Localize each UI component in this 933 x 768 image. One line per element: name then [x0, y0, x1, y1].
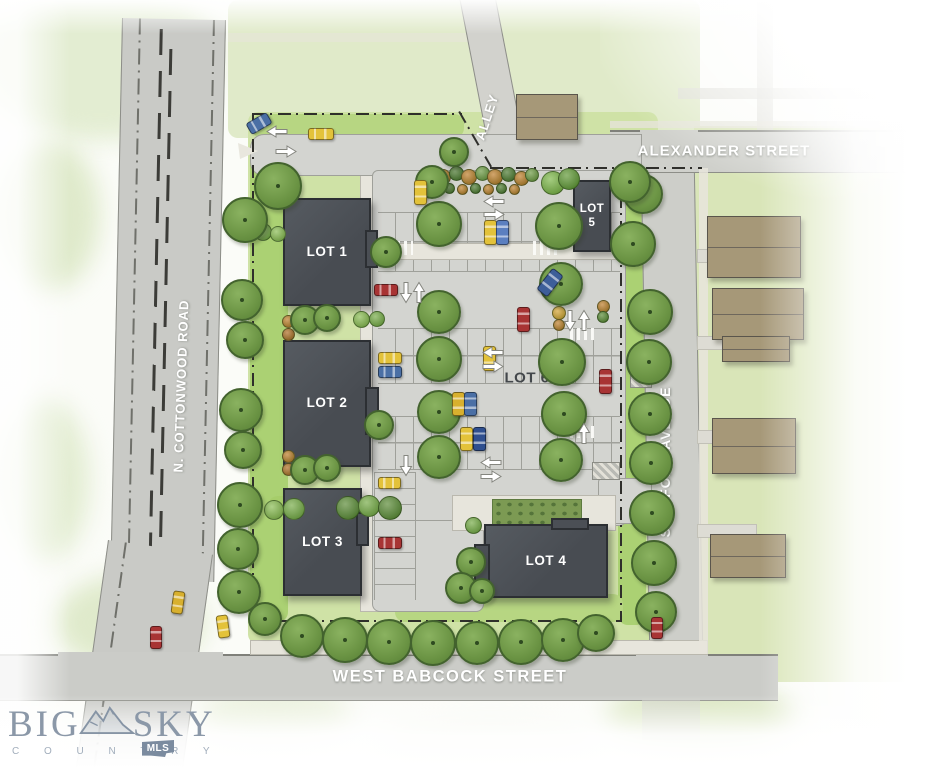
car [460, 427, 473, 451]
drive-aisle-arrow-right [275, 145, 297, 158]
shrub [496, 183, 507, 194]
car [215, 614, 230, 638]
site-plan-canvas: LOT 1 LOT 2 LOT 3 LOT 4 LOT 5 LOT 6 ALLE… [0, 0, 933, 768]
drive-aisle-arrow-up [578, 422, 591, 444]
house [707, 216, 801, 278]
shrub [558, 168, 580, 190]
shrub [336, 496, 360, 520]
car [599, 369, 612, 394]
house [712, 418, 796, 474]
car [651, 617, 663, 639]
shrub [457, 184, 468, 195]
drive-aisle-arrow-right [480, 470, 502, 483]
tree [217, 482, 263, 528]
drive-aisle-arrow-down [400, 454, 413, 476]
car [484, 220, 497, 245]
bigsky-mls-logo: BIG SKY C O U N T R Y MLS [8, 704, 221, 757]
tree [498, 619, 544, 665]
tree [417, 435, 461, 479]
tree [577, 614, 615, 652]
tree [609, 161, 651, 203]
shrub [358, 495, 380, 517]
shrub [378, 496, 402, 520]
tree [629, 441, 673, 485]
shrub [465, 517, 482, 534]
tree [629, 490, 675, 536]
drive-aisle-arrow-down [564, 309, 577, 331]
shrub [470, 183, 481, 194]
logo-word-sky: SKY [133, 706, 216, 743]
tree [366, 619, 412, 665]
tree [322, 617, 368, 663]
shrub [283, 498, 305, 520]
car [374, 284, 398, 296]
tree [313, 304, 341, 332]
car [378, 366, 402, 378]
tree [217, 528, 259, 570]
house [710, 534, 786, 578]
scenery-layer [0, 0, 933, 768]
tree [610, 221, 656, 267]
house [722, 336, 790, 362]
tree [219, 388, 263, 432]
drive-aisle-arrow-left [482, 346, 504, 359]
mountain-icon [79, 704, 135, 743]
drive-aisle-arrow-left [483, 195, 505, 208]
car [517, 307, 530, 332]
mls-badge-text: MLS [147, 743, 170, 754]
tree [538, 338, 586, 386]
tree [226, 321, 264, 359]
car [170, 590, 185, 614]
tree [224, 431, 262, 469]
car [308, 128, 334, 140]
drive-aisle-arrow-down [400, 281, 413, 303]
tree [439, 137, 469, 167]
tree [535, 202, 583, 250]
drive-aisle-arrow-up [413, 281, 426, 303]
drive-aisle-arrow-right [482, 360, 504, 373]
tree [280, 614, 324, 658]
tree [631, 540, 677, 586]
logo-subtitle: C O U N T R Y [12, 746, 221, 757]
tree [539, 438, 583, 482]
drive-aisle-arrow-left [480, 456, 502, 469]
shrub [270, 226, 286, 242]
shrub [509, 184, 520, 195]
tree [222, 197, 268, 243]
house [516, 94, 578, 140]
tree [364, 410, 394, 440]
tree [410, 620, 456, 666]
car [378, 537, 402, 549]
shrub [369, 311, 385, 327]
drive-aisle-arrow-right [483, 208, 505, 221]
shrub [525, 168, 539, 182]
car [378, 352, 402, 364]
car [378, 477, 401, 489]
car [452, 392, 465, 416]
shrub [597, 311, 609, 323]
tree [626, 339, 672, 385]
tree [627, 289, 673, 335]
logo-word-big: BIG [8, 706, 81, 743]
tree [416, 201, 462, 247]
house [712, 288, 804, 340]
car [150, 626, 162, 649]
tree [248, 602, 282, 636]
car [414, 180, 427, 205]
utility-pad [592, 462, 620, 480]
tree [370, 236, 402, 268]
shrub [353, 311, 370, 328]
shrub [483, 184, 494, 195]
tree [221, 279, 263, 321]
car [496, 220, 509, 245]
shrub [264, 500, 284, 520]
tree [628, 392, 672, 436]
tree [455, 621, 499, 665]
tree [416, 336, 462, 382]
tree [313, 454, 341, 482]
car [464, 392, 477, 416]
tree [469, 578, 495, 604]
logo-wordmark: BIG SKY [8, 704, 221, 743]
car [473, 427, 486, 451]
drive-aisle-arrow-up [578, 309, 591, 331]
drive-aisle-arrow-left [266, 125, 288, 138]
